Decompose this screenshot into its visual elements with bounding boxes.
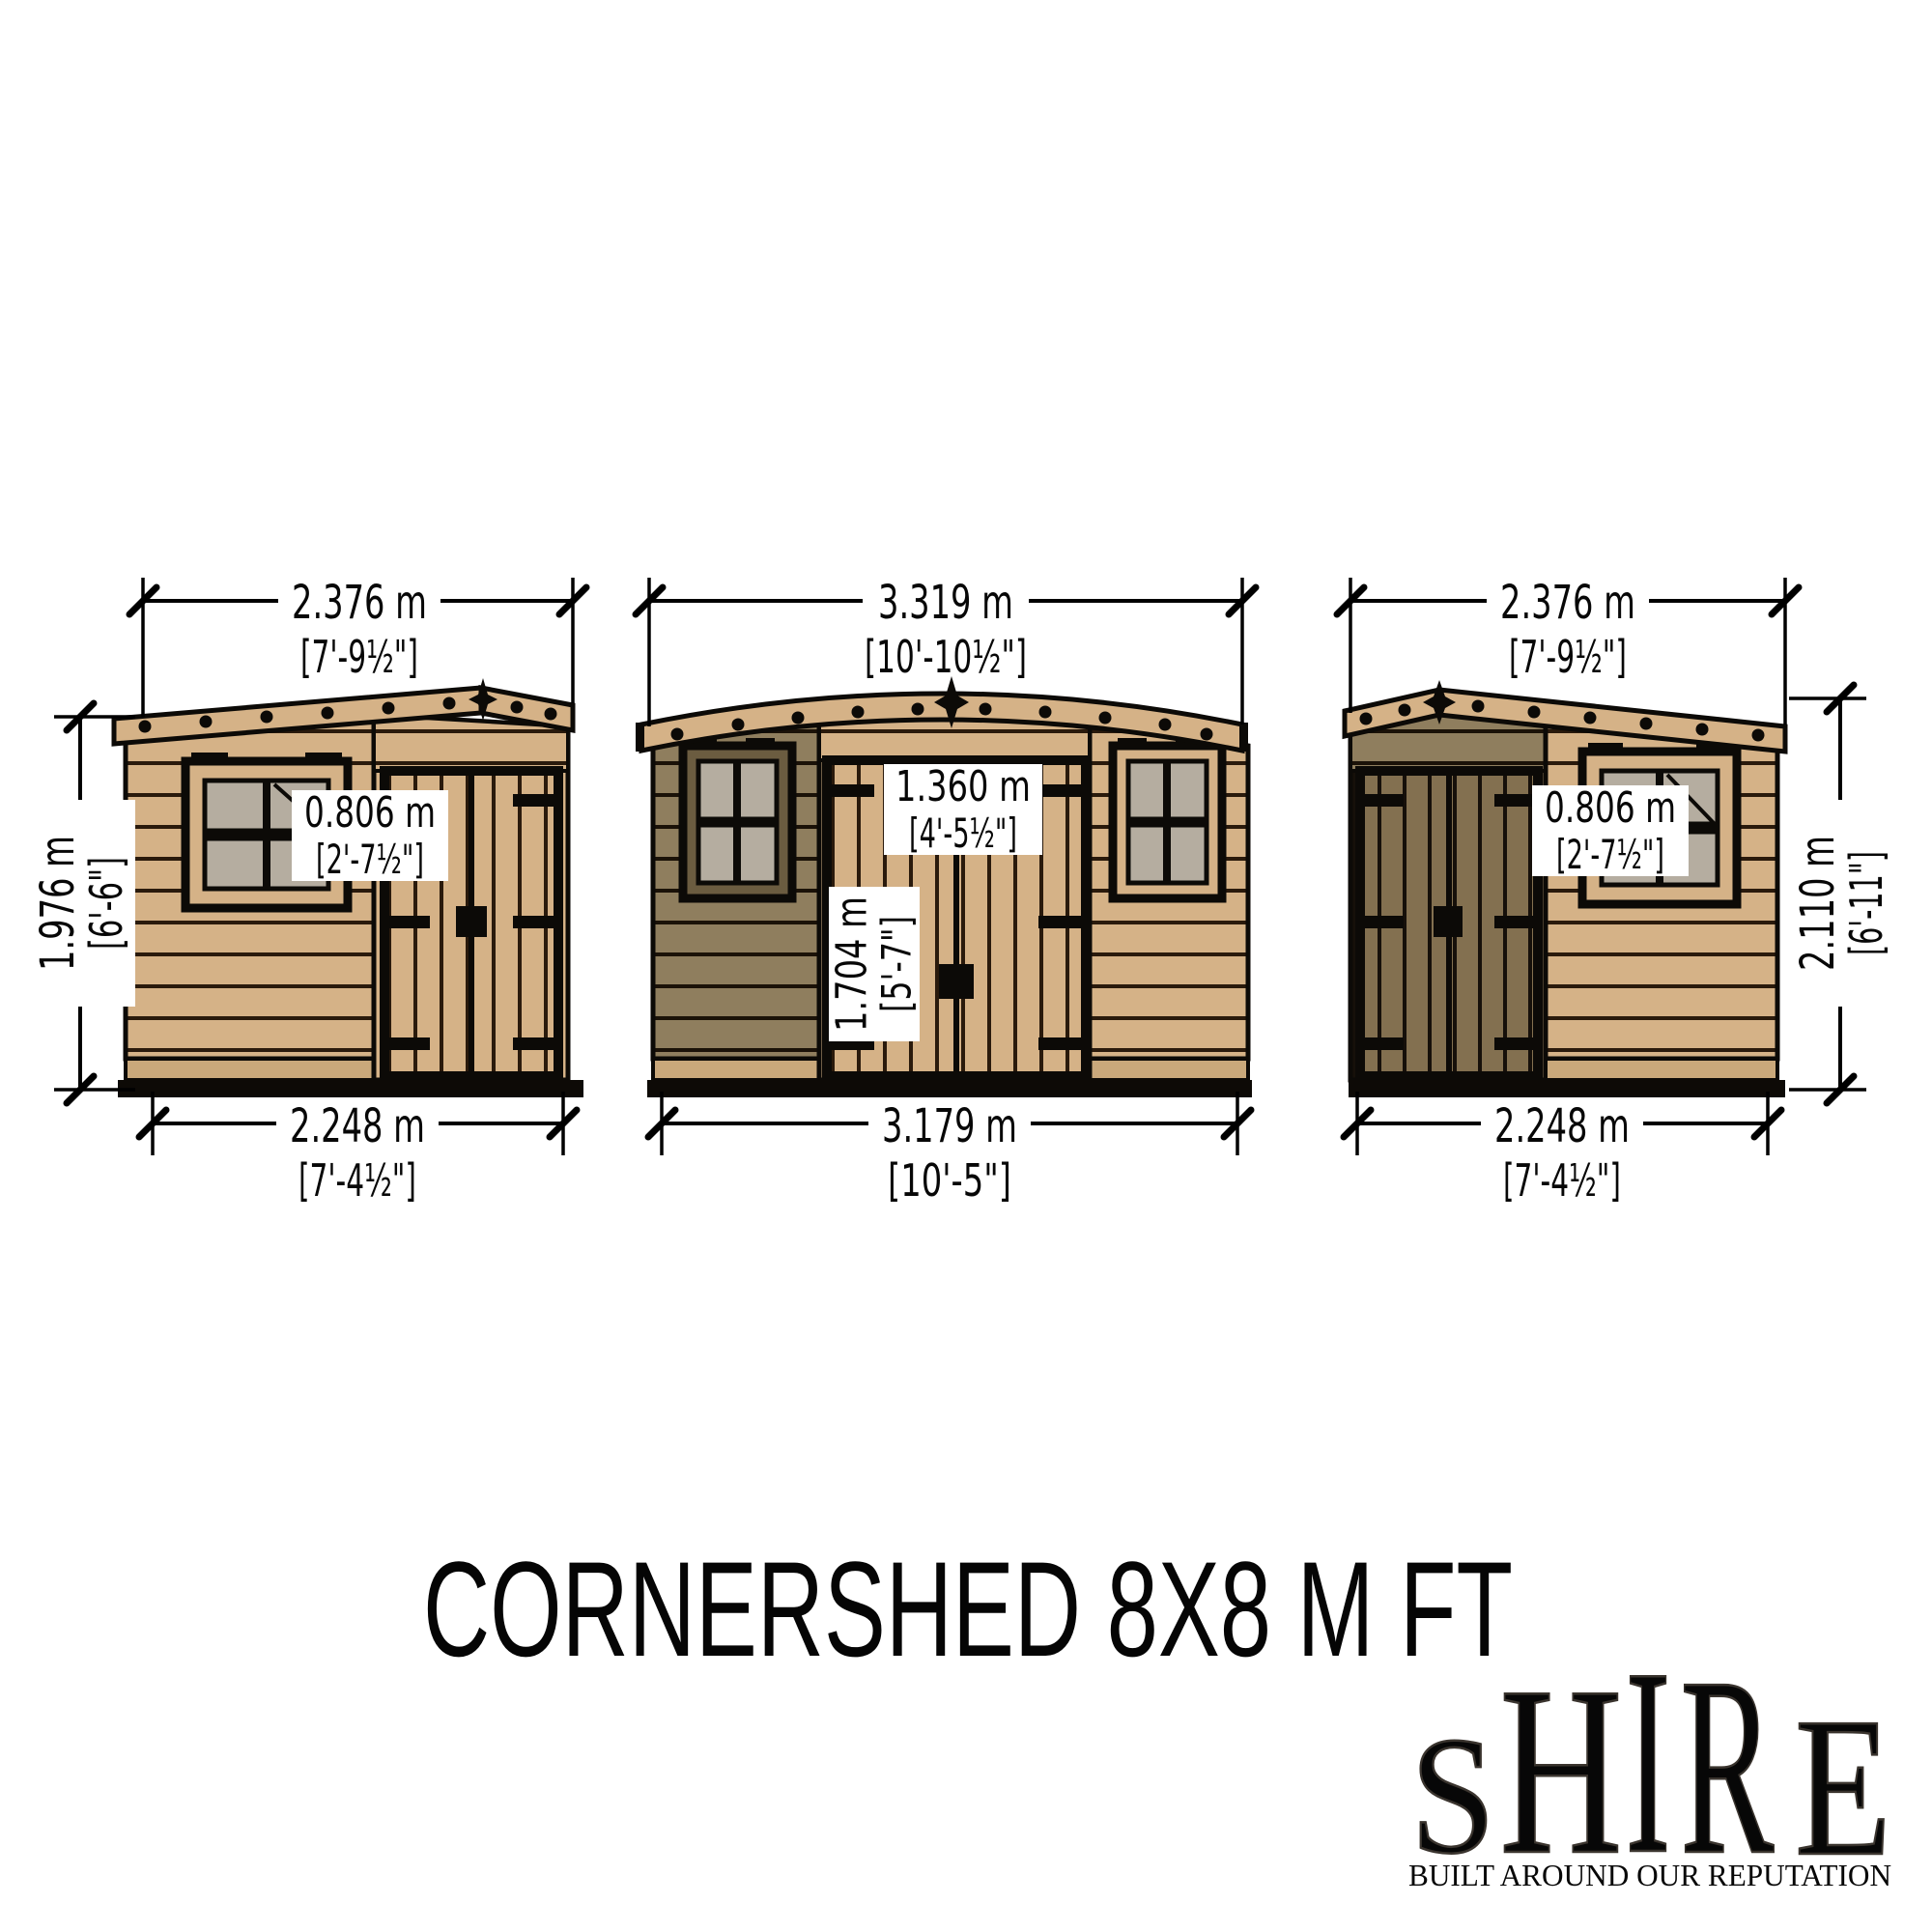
door-handle	[939, 964, 974, 999]
left-floor-strip	[126, 1059, 374, 1080]
left-elevation-view: 2.376 m [7'-9½"] 1.976 m [6'-6"] 2.248 m…	[31, 576, 586, 1207]
window-hinge-tab	[191, 753, 228, 764]
dim-label-imperial: [7'-4½"]	[298, 1154, 416, 1207]
dim-label-metric: 3.319 m	[878, 576, 1013, 630]
label-front-door-height: 1.704 m [5'-7"]	[828, 887, 921, 1041]
dim-label-imperial: [7'-9½"]	[1509, 631, 1627, 683]
dim-label-metric: 0.806 m	[304, 788, 436, 838]
left-base-rail	[118, 1080, 583, 1097]
door-hinge	[513, 1037, 555, 1050]
label-front-door-width: 1.360 m [4'-5½"]	[884, 762, 1042, 857]
door-hinge	[830, 784, 874, 797]
dim-label-imperial: [5'-7"]	[873, 916, 921, 1012]
door-hinge	[1363, 916, 1404, 928]
dim-label-imperial: [7'-4½"]	[1503, 1154, 1621, 1207]
front-right-window	[1113, 738, 1222, 898]
dim-label-imperial: [2'-7½"]	[316, 836, 424, 883]
window-hinge-tab	[305, 753, 342, 764]
dim-label-imperial: [6'-11"]	[1840, 851, 1892, 955]
door-hinge	[1038, 916, 1083, 928]
door-hinge	[513, 794, 555, 807]
dim-label-metric: 2.376 m	[1500, 576, 1635, 630]
dim-label-imperial: [7'-9½"]	[300, 631, 418, 683]
dim-label-metric: 1.360 m	[895, 762, 1031, 811]
door-hinge	[1494, 1037, 1535, 1050]
door-handle	[1434, 906, 1463, 937]
door-hinge	[1494, 794, 1535, 807]
window-hinge-tab	[1588, 743, 1623, 754]
diagram-svg: 2.376 m [7'-9½"] 1.976 m [6'-6"] 2.248 m…	[0, 0, 1932, 1932]
dim-label-imperial: [10'-5"]	[888, 1154, 1011, 1207]
dim-label-metric: 2.248 m	[1494, 1099, 1630, 1153]
front-left-window	[683, 738, 792, 898]
dim-front-base-width: 3.179 m [10'-5"]	[648, 1092, 1251, 1207]
dim-label-imperial: [6'-6"]	[80, 857, 132, 950]
door-hinge	[387, 916, 430, 928]
door-hinge	[1363, 1037, 1404, 1050]
dim-label-imperial: [2'-7½"]	[1556, 831, 1664, 878]
logo-tagline: BUILT AROUND OUR REPUTATION	[1408, 1858, 1891, 1892]
door-handle	[456, 906, 487, 937]
door-hinge	[1494, 916, 1535, 928]
dim-left-base-width: 2.248 m [7'-4½"]	[139, 1092, 577, 1207]
dim-label-metric: 3.179 m	[882, 1099, 1017, 1153]
dim-right-height: 2.110 m [6'-11"]	[1789, 685, 1895, 1103]
dim-label-metric: 2.110 m	[1791, 836, 1845, 971]
dim-label-imperial: [4'-5½"]	[909, 810, 1017, 857]
door-hinge	[1038, 784, 1083, 797]
label-left-window-size: 0.806 m [2'-7½"]	[292, 788, 448, 883]
page-title: CORNERSHED 8X8 M FT	[423, 1533, 1513, 1685]
front-floor-strip	[1090, 1059, 1248, 1080]
label-right-window-size: 0.806 m [2'-7½"]	[1532, 783, 1689, 878]
right-base-rail	[1349, 1080, 1785, 1097]
dim-label-metric: 2.376 m	[292, 576, 427, 630]
right-floor-strip	[1546, 1059, 1777, 1080]
shed-dimension-diagram: 2.376 m [7'-9½"] 1.976 m [6'-6"] 2.248 m…	[0, 0, 1932, 1932]
dim-left-height: 1.976 m [6'-6"]	[31, 703, 135, 1103]
door-hinge	[387, 1037, 430, 1050]
door-hinge	[1363, 794, 1404, 807]
dim-label-metric: 0.806 m	[1545, 783, 1676, 833]
door-hinge	[1038, 1037, 1083, 1050]
right-elevation-view: 2.376 m [7'-9½"] 2.110 m [6'-11"] 2.248 …	[1337, 576, 1895, 1207]
dim-right-base-width: 2.248 m [7'-4½"]	[1344, 1092, 1781, 1207]
dim-label-imperial: [10'-10½"]	[865, 631, 1027, 683]
front-base-rail	[647, 1080, 1252, 1097]
door-hinge	[513, 916, 555, 928]
front-elevation-view: 3.319 m [10'-10½"] 3.179 m [10'-5"] 1.36…	[636, 576, 1256, 1207]
corner-double-door-shadow	[1360, 771, 1538, 1076]
dim-label-metric: 2.248 m	[290, 1099, 425, 1153]
dim-label-metric: 1.976 m	[31, 836, 85, 971]
dim-label-metric: 1.704 m	[828, 896, 877, 1032]
front-floor-strip	[653, 1059, 819, 1080]
